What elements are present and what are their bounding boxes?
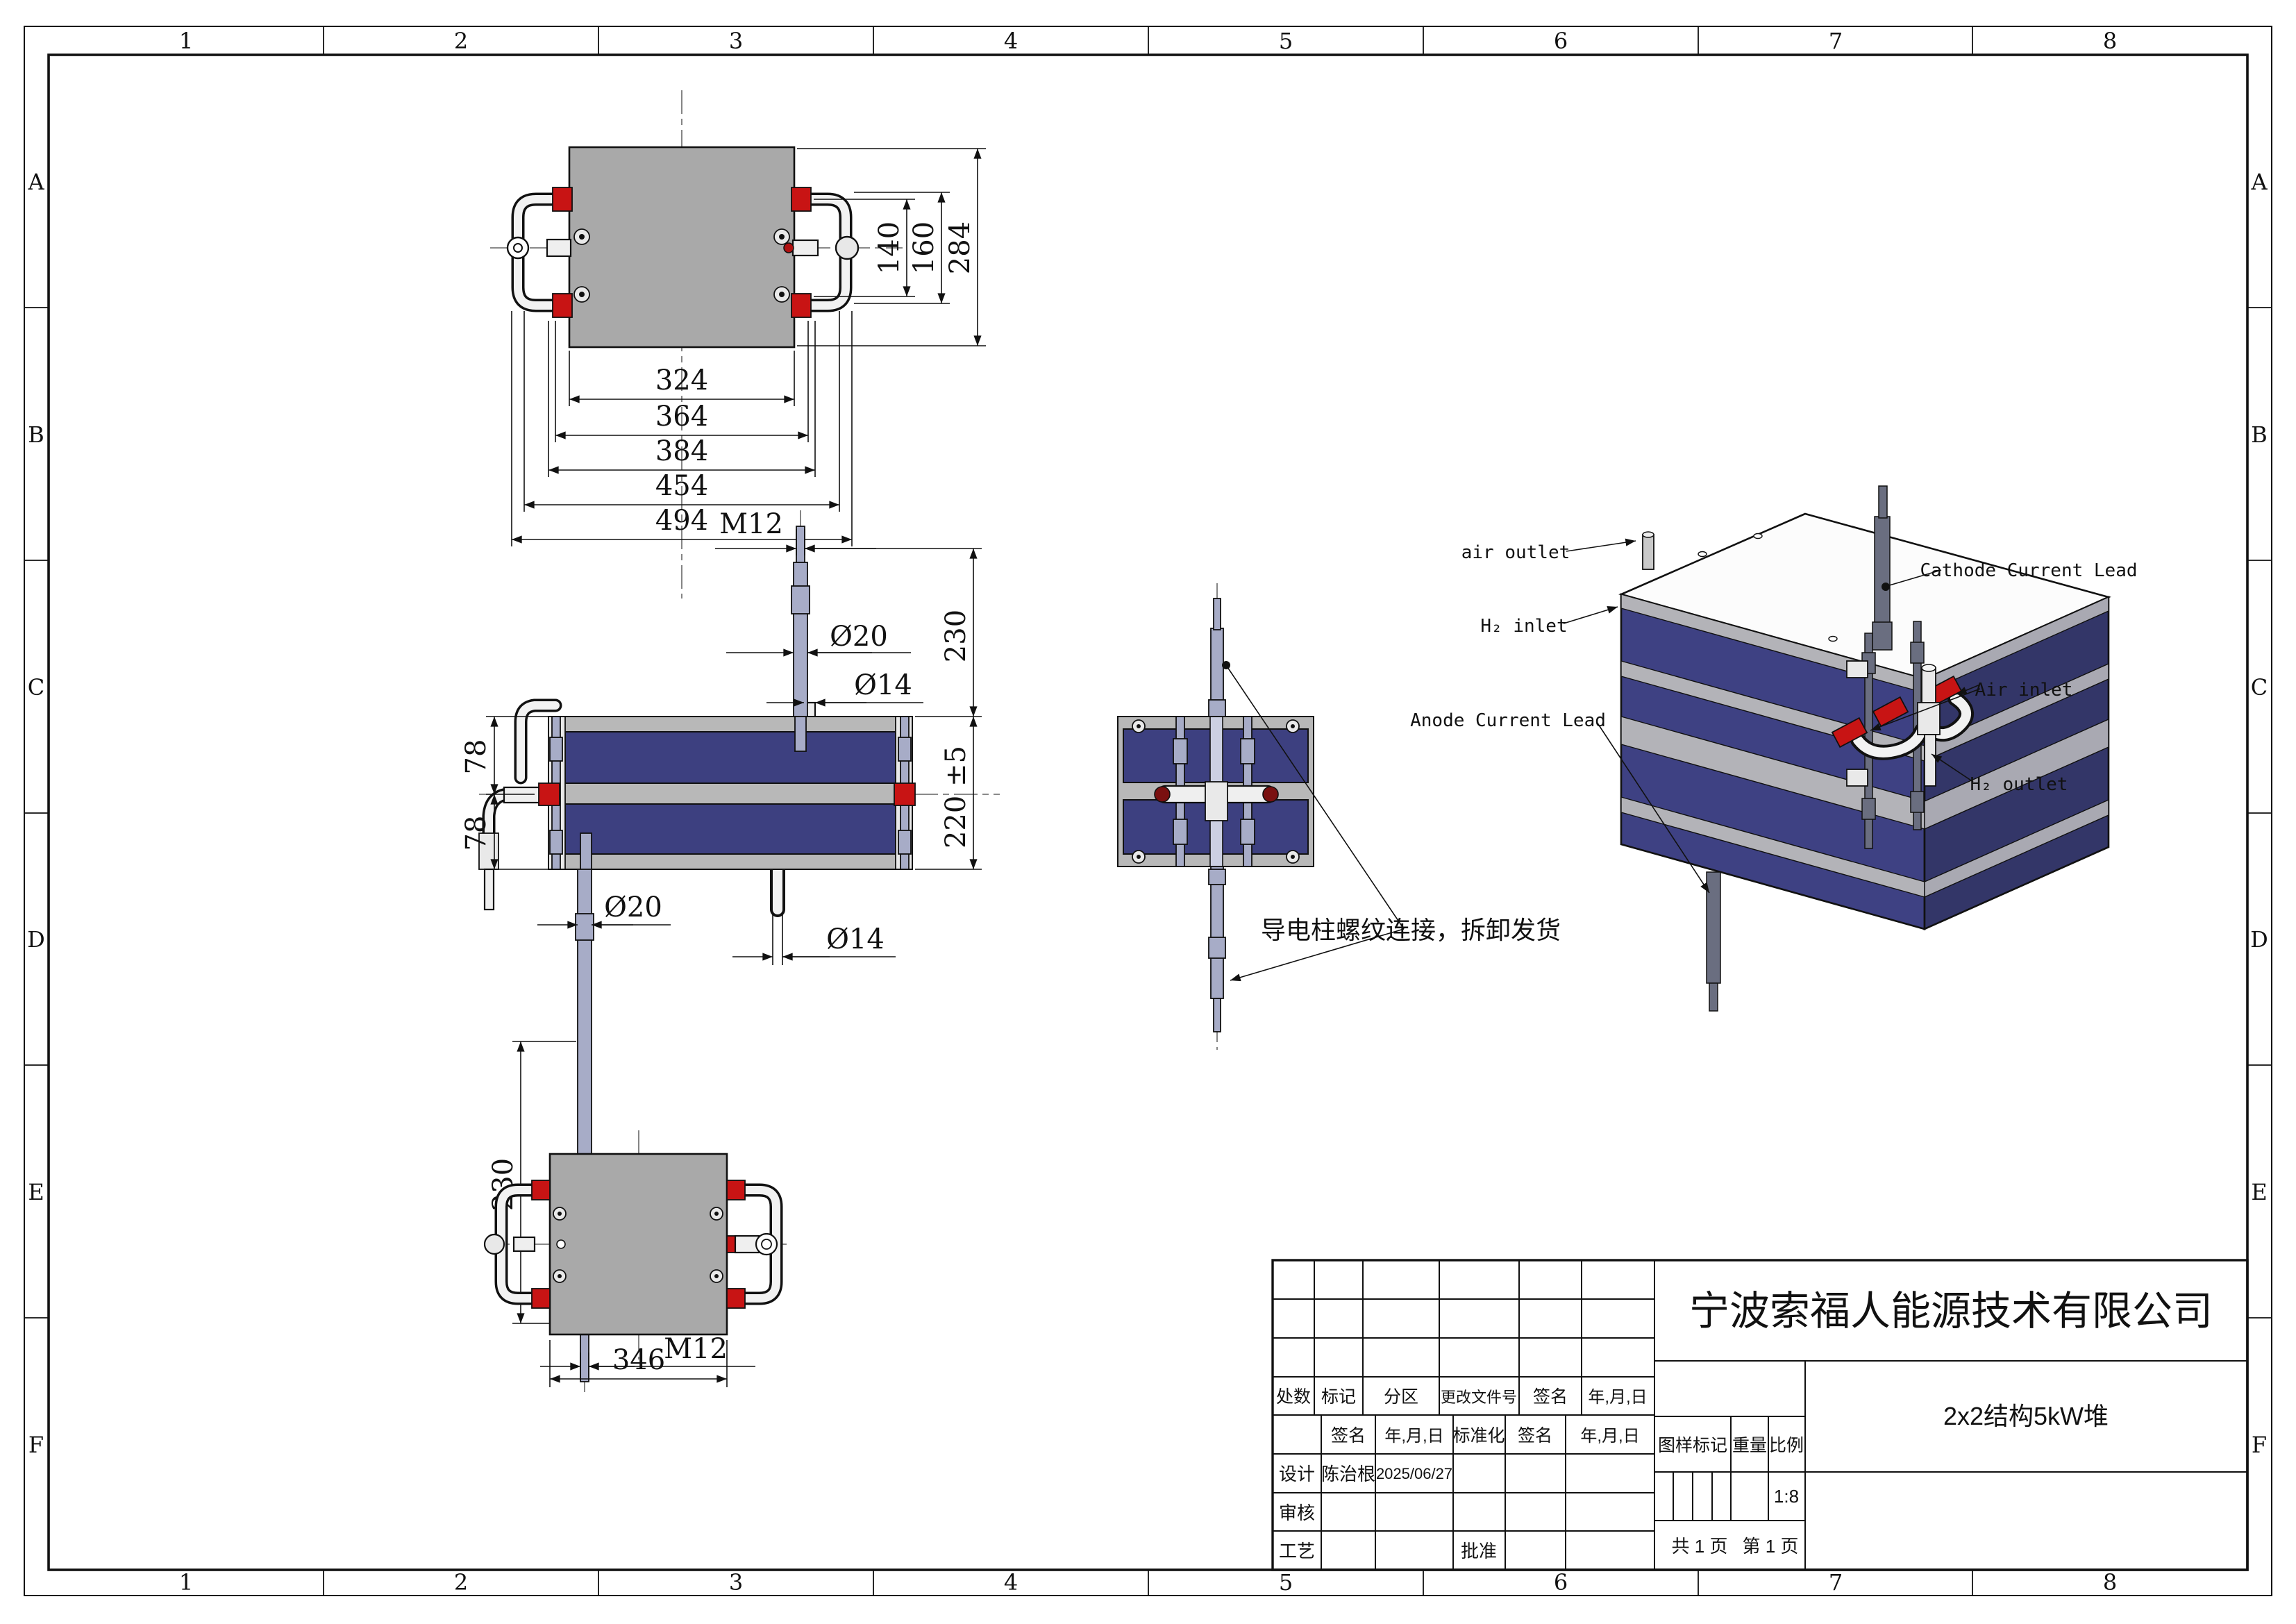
row-design: 设计 (1279, 1464, 1315, 1484)
red-port-dot (784, 243, 794, 253)
hdr-mark: 标记 (1321, 1387, 1356, 1407)
dim-284: 284 (944, 221, 976, 274)
col-label: 5 (1279, 28, 1293, 54)
hdr-zone: 分区 (1384, 1387, 1418, 1407)
scale-label: 比例 (1769, 1436, 1804, 1455)
conductive-rod-bottom (1211, 867, 1223, 998)
drawing-sheet: 1 2 3 4 5 6 7 8 1 2 3 4 5 6 7 8 A B C D … (0, 0, 2296, 1624)
red-fitting (553, 187, 572, 211)
dim-324: 324 (655, 365, 708, 396)
red-fitting (791, 187, 811, 211)
row-label: E (2251, 1179, 2267, 1205)
dim-phi14-top: Ø14 (854, 669, 912, 701)
label-air-outlet: air outlet (1461, 542, 1570, 563)
h2-outlet-pipe (1925, 735, 1936, 786)
dim-346: 346 (612, 1344, 665, 1376)
ball-knob (485, 1234, 504, 1254)
corner-bracket (1847, 661, 1868, 678)
row-label: D (2250, 926, 2268, 953)
cell-band-lower (565, 804, 896, 854)
current-rod-tip-top (796, 526, 805, 562)
col-label: 3 (729, 28, 743, 54)
row-label: B (2251, 421, 2268, 448)
col-label: 6 (1554, 28, 1568, 54)
drawing-title: 2x2结构5kW堆 (1943, 1402, 2109, 1430)
col-label: 3 (729, 1569, 743, 1596)
dim-m12-top: M12 (719, 508, 783, 540)
row-label: F (2252, 1432, 2267, 1458)
label-h2-outlet: H₂ outlet (1970, 774, 2068, 795)
hdr-date3: 年,月,日 (1580, 1427, 1639, 1446)
company-name: 宁波索福人能源技术有限公司 (1689, 1289, 2213, 1334)
label-air-inlet: Air inlet (1975, 680, 2073, 701)
col-label: 2 (454, 1569, 468, 1596)
row-process: 工艺 (1279, 1541, 1315, 1562)
left-port-stub (547, 240, 571, 256)
col-label: 1 (179, 28, 193, 54)
hdr-qty: 处数 (1276, 1387, 1311, 1407)
row-label: F (28, 1432, 44, 1458)
left-port-stub (514, 1237, 535, 1251)
label-h2-inlet: H₂ inlet (1480, 616, 1567, 637)
dim-m12-bottom: M12 (664, 1333, 728, 1365)
rod-coupler (791, 586, 810, 614)
corner-bracket (1847, 769, 1868, 786)
h2-outlet-pipe-top (1922, 668, 1936, 704)
hdr-date: 年,月,日 (1588, 1388, 1647, 1407)
anode-rod (1707, 872, 1720, 983)
pages-total: 共 1 页 (1672, 1536, 1728, 1557)
pipe-end-red (1155, 787, 1170, 802)
note-text: 导电柱螺纹连接，拆卸发货 (1261, 916, 1561, 944)
row-label: C (2251, 674, 2268, 701)
hdr-standardization: 标准化 (1452, 1426, 1505, 1446)
col-label: 6 (1554, 1569, 1568, 1596)
weight-label: 重量 (1732, 1436, 1767, 1455)
red-fitting (532, 1180, 550, 1200)
col-label: 5 (1279, 1569, 1293, 1596)
dim-220: 220 ±5 (940, 746, 972, 848)
page-current: 第 1 页 (1743, 1536, 1799, 1557)
dim-364: 364 (655, 401, 708, 433)
top-face-hole (1698, 552, 1707, 557)
col-label: 8 (2103, 1569, 2117, 1596)
col-label: 2 (454, 28, 468, 54)
col-label: 1 (179, 1569, 193, 1596)
col-label: 4 (1004, 1569, 1018, 1596)
stack-body-bottom (550, 1154, 727, 1334)
dim-140: 140 (873, 221, 905, 274)
red-coupler-right (894, 783, 915, 805)
hdr-sign2: 签名 (1331, 1426, 1366, 1446)
hdr-doc-no: 更改文件号 (1441, 1389, 1517, 1406)
cathode-rod (1875, 517, 1890, 628)
top-face-hole (1754, 534, 1762, 539)
red-ring (727, 1236, 735, 1253)
dim-phi14-bottom: Ø14 (826, 923, 885, 955)
dim-160: 160 (908, 221, 940, 274)
dim-78-lower: 78 (460, 816, 492, 851)
row-label: B (28, 421, 44, 448)
col-label: 4 (1004, 28, 1018, 54)
port-hole (557, 1240, 565, 1248)
red-fitting (553, 294, 572, 317)
dim-384: 384 (655, 435, 708, 467)
col-label: 8 (2103, 28, 2117, 54)
dim-454: 454 (655, 470, 708, 502)
row-label: A (2250, 169, 2268, 195)
label-anode-current-lead: Anode Current Lead (1410, 710, 1606, 731)
hdr-sign3: 签名 (1518, 1426, 1552, 1446)
left-mid-pipe (504, 787, 540, 803)
red-fitting (727, 1289, 745, 1308)
col-label: 7 (1829, 28, 1843, 54)
scale-value: 1:8 (1774, 1486, 1799, 1507)
mark-label: 图样标记 (1658, 1436, 1727, 1455)
rod-coupler (576, 914, 594, 940)
dim-78-upper: 78 (460, 739, 492, 775)
red-fitting (727, 1180, 745, 1200)
dim-230-top: 230 (940, 610, 972, 662)
row-check: 审核 (1279, 1502, 1315, 1523)
center-block (1205, 782, 1227, 821)
row-label: E (28, 1179, 44, 1205)
top-face-hole (1829, 637, 1837, 642)
hdr-date2: 年,月,日 (1384, 1427, 1443, 1446)
dim-phi20-top: Ø20 (830, 621, 888, 653)
dim-phi20-bottom: Ø20 (604, 891, 662, 923)
hdr-sign: 签名 (1533, 1387, 1568, 1407)
cell-band-upper (565, 732, 896, 783)
row-label: A (27, 169, 44, 195)
red-coupler-left (539, 783, 560, 805)
pipe-end-red (1263, 787, 1278, 802)
row-label: C (28, 674, 44, 701)
right-port-stub (793, 240, 818, 256)
designer-name: 陈治根 (1321, 1464, 1375, 1484)
dim-494: 494 (655, 505, 708, 537)
red-fitting (532, 1289, 550, 1308)
col-label: 7 (1829, 1569, 1843, 1596)
h2-outlet-sleeve (1918, 703, 1940, 735)
label-cathode-current-lead: Cathode Current Lead (1920, 560, 2137, 581)
left-pipe-end (485, 869, 494, 910)
red-fitting (791, 294, 811, 317)
row-approve: 批准 (1461, 1541, 1497, 1562)
row-label: D (27, 926, 45, 953)
cad-drawing: 1 2 3 4 5 6 7 8 1 2 3 4 5 6 7 8 A B C D … (0, 0, 2296, 1624)
air-outlet-port (1643, 535, 1654, 569)
stack-body-top (569, 147, 794, 347)
design-date: 2025/06/27 (1376, 1465, 1452, 1482)
ball-knob (836, 237, 858, 259)
